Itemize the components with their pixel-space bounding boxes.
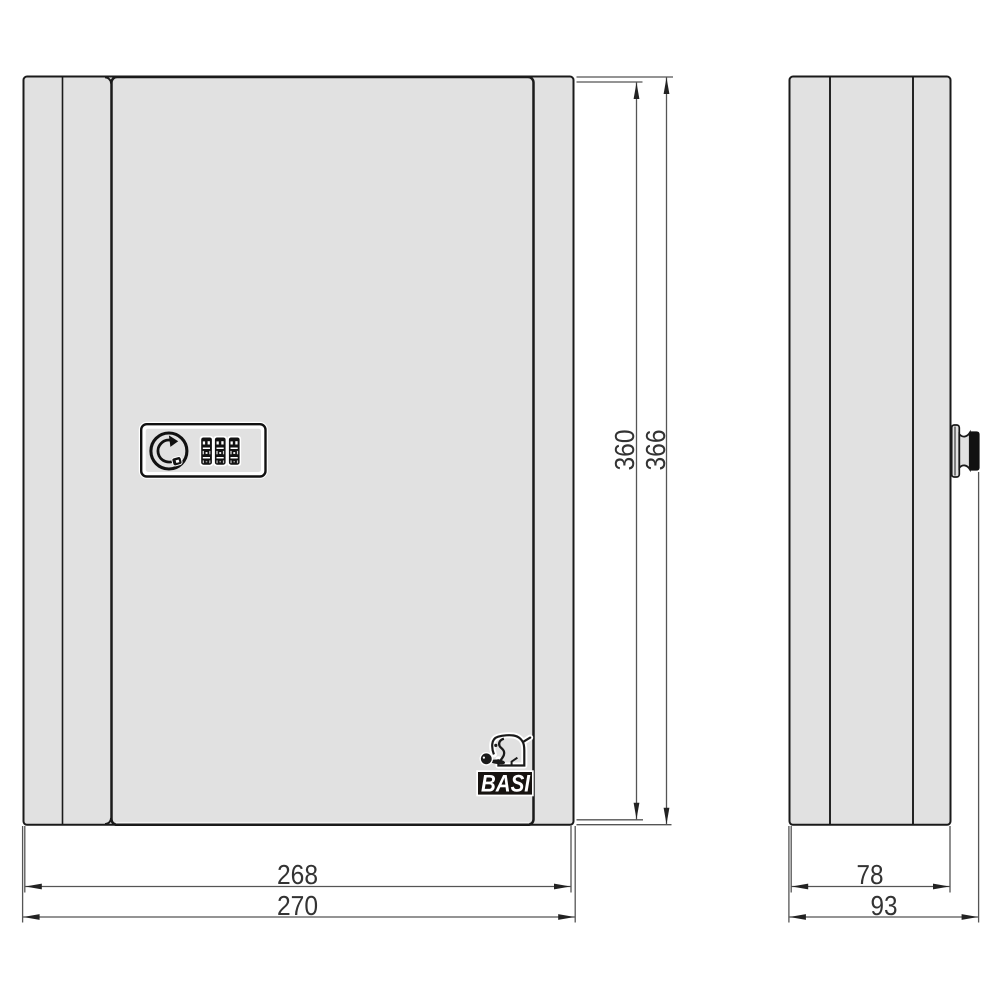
svg-text:93: 93 <box>871 890 898 921</box>
svg-text:270: 270 <box>277 890 318 921</box>
svg-text:268: 268 <box>277 859 318 890</box>
svg-text:78: 78 <box>857 859 884 890</box>
svg-text:BASI: BASI <box>481 771 531 798</box>
svg-text:360: 360 <box>609 430 640 471</box>
svg-text:366: 366 <box>640 430 671 471</box>
